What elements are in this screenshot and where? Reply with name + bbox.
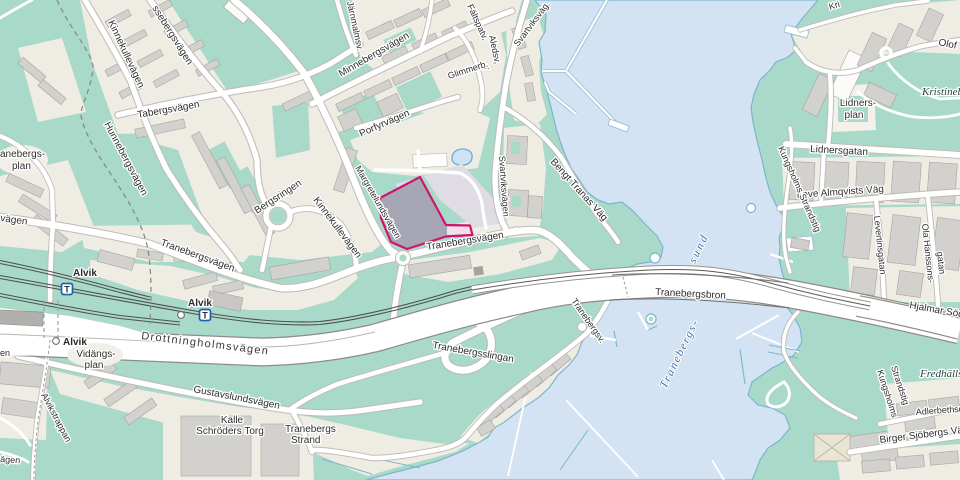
- svg-text:Alvik: Alvik: [188, 298, 212, 309]
- svg-text:Kristinebe: Kristinebe: [921, 86, 960, 98]
- svg-text:Strand: Strand: [291, 435, 320, 446]
- svg-text:T: T: [202, 311, 208, 321]
- svg-text:ägen: ägen: [0, 454, 21, 465]
- svg-text:Kalle: Kalle: [221, 415, 244, 426]
- svg-text:Tranebergs: Tranebergs: [285, 424, 336, 435]
- svg-text:Alvik: Alvik: [63, 337, 87, 348]
- svg-text:Schröders Torg: Schröders Torg: [196, 426, 264, 437]
- svg-text:T: T: [64, 285, 70, 295]
- svg-text:Alvik: Alvik: [73, 268, 97, 279]
- svg-text:en: en: [0, 348, 10, 358]
- svg-text:plan: plan: [12, 161, 31, 172]
- svg-text:plan: plan: [85, 360, 104, 371]
- svg-text:Vidängs-: Vidängs-: [76, 349, 115, 360]
- svg-text:Fredhällsp.: Fredhällsp.: [919, 368, 960, 380]
- svg-text:plan: plan: [845, 110, 864, 121]
- svg-text:anebergs-: anebergs-: [0, 149, 45, 160]
- svg-text:Lidners-: Lidners-: [840, 98, 876, 109]
